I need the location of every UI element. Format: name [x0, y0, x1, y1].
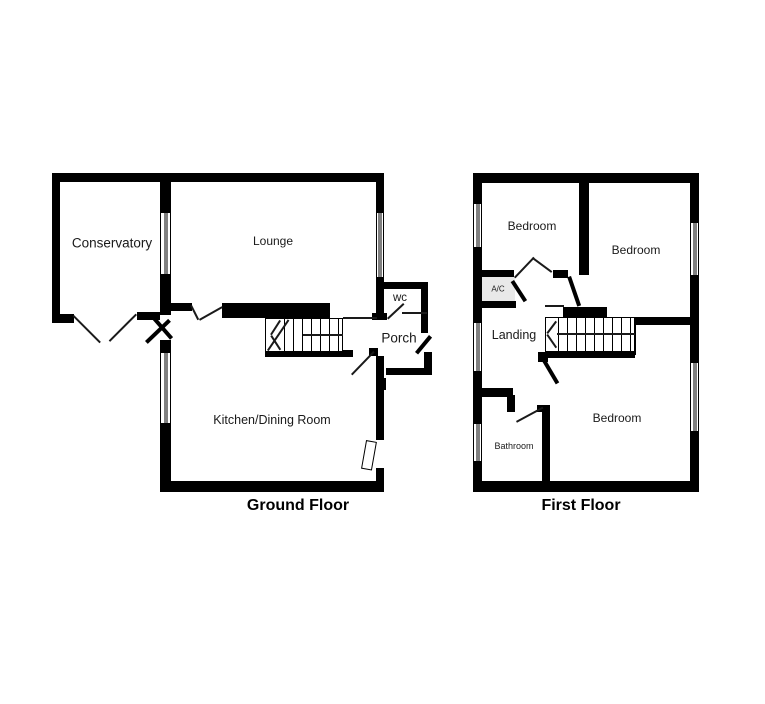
floor-title-first: First Floor — [541, 497, 620, 515]
door-swing-hall-porch — [351, 351, 374, 375]
door-swing-conservatory-french-left — [73, 315, 101, 343]
wall-ground-top — [52, 173, 384, 182]
window-kitchen-left — [160, 352, 171, 424]
door-swing-conservatory-french-right — [109, 314, 137, 342]
wall-first-right — [690, 173, 699, 492]
door-swing-bathroom — [516, 407, 543, 423]
stair-treads — [558, 318, 634, 351]
window-first-right-top — [690, 222, 699, 276]
room-label-bedroom-bottom-right: Bedroom — [593, 411, 642, 425]
wall-bedroom1-bottom — [482, 270, 514, 277]
wall-stairwell-top-bar-ground — [222, 303, 330, 318]
door-swing-lounge-hall — [191, 305, 200, 320]
window-first-left-top — [473, 203, 482, 248]
room-label-porch: Porch — [381, 331, 416, 346]
wall-divider-right-bedrooms — [633, 317, 690, 325]
staircase-first — [545, 317, 635, 352]
door-leaf-kitchen-rear — [361, 440, 377, 470]
wall-first-top — [473, 173, 699, 183]
wall-stairwell-top-bar-first — [563, 307, 607, 317]
wall-wc-porch-right — [421, 282, 428, 333]
wall-bathroom-jog — [507, 395, 515, 412]
wall-kitchen-right — [376, 356, 384, 440]
room-label-bedroom-front-left: Bedroom — [508, 219, 557, 233]
opening-line-landing-stairs — [545, 305, 564, 307]
window-lounge-right — [376, 212, 384, 278]
window-first-left-bottom — [473, 423, 482, 462]
wall-lounge-right-upper — [376, 173, 384, 213]
room-label-kitchen-dining: Kitchen/Dining Room — [213, 413, 330, 427]
door-leaf-bedroom2 — [567, 276, 581, 307]
wall-divider-conservatory-lounge-upper — [160, 173, 171, 213]
wall-lounge-bottom — [160, 303, 192, 311]
wall-porch-bottom — [386, 368, 432, 375]
wall-landing-nub — [553, 270, 568, 278]
wall-ground-bottom — [160, 481, 384, 492]
wall-first-bottom — [473, 481, 699, 492]
wall-bathroom-bedroom-divider — [542, 405, 550, 492]
stair-mid-line-first — [557, 333, 635, 335]
wall-conservatory-left — [52, 173, 60, 323]
stair-mid-line-ground — [303, 334, 343, 336]
door-swing-bedroom1 — [514, 257, 534, 278]
opening-line-hall-porch — [343, 317, 377, 319]
wall-kitchen-left-top — [160, 340, 171, 352]
window-conservatory-lounge — [160, 212, 171, 275]
room-label-landing: Landing — [492, 328, 537, 342]
door-swing-bedroom1 — [532, 257, 552, 272]
window-first-left-middle — [473, 322, 482, 372]
room-label-bedroom-rear-right: Bedroom — [612, 243, 661, 257]
window-first-right-bottom — [690, 362, 699, 432]
room-label-wc: wc — [393, 292, 407, 304]
floor-title-ground: Ground Floor — [247, 497, 349, 515]
wall-kitchen-right-bottom — [376, 468, 384, 492]
floorplan-canvas: Conservatory Lounge wc Porch Kitchen/Din… — [0, 0, 765, 704]
room-label-conservatory: Conservatory — [72, 236, 152, 251]
door-swing-lounge-hall — [199, 306, 222, 320]
wall-divider-top-bedrooms — [579, 183, 589, 275]
room-label-bathroom: Bathroom — [494, 441, 533, 451]
wall-kitchen-right-notch — [380, 378, 386, 390]
wall-ac-bottom — [482, 301, 516, 308]
wall-conservatory-bottom-left — [52, 314, 74, 323]
room-label-lounge: Lounge — [253, 234, 293, 248]
room-label-ac-cupboard: A/C — [491, 285, 504, 294]
door-leaf-bedroom3 — [543, 360, 560, 384]
opening-line-wc-bottom — [402, 312, 427, 314]
